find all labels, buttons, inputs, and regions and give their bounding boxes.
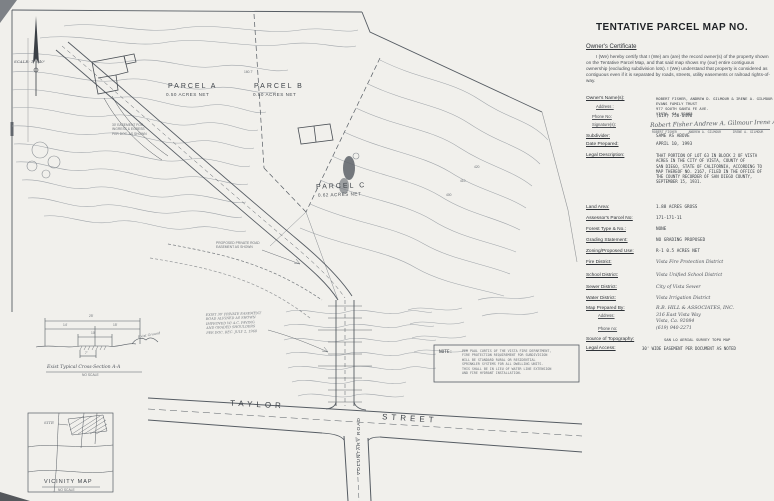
water-district-label: Water District: xyxy=(586,296,616,301)
parcel-a-label: PARCEL A xyxy=(168,82,217,91)
leader-arrows xyxy=(58,250,328,425)
owners-certificate-body: I (We) hereby certify that I (We) am (ar… xyxy=(586,54,770,84)
owner-address-label: Address : xyxy=(596,104,614,109)
subdivider-label: Subdivider: xyxy=(586,134,610,139)
vicinity-map-scale: NO SCALE xyxy=(58,488,75,492)
signature-label: Signature(s): xyxy=(592,122,616,127)
cross-section-drawing xyxy=(36,318,158,372)
house-parcel-b xyxy=(298,124,333,144)
elevation-400: 400 xyxy=(446,193,452,197)
sheet-title: TENTATIVE PARCEL MAP NO. xyxy=(596,22,772,33)
cs-dim-10: 10' xyxy=(91,331,95,335)
school-district-label: School District: xyxy=(586,273,618,278)
cs-dim-7: 7' xyxy=(85,351,87,355)
preparer-address-value: 316 East Vista Way Vista, Ca. 92084 xyxy=(656,313,701,325)
owners-certificate-heading: Owner's Certificate xyxy=(586,44,637,50)
date-prepared-row: Date Prepared: APRIL 10, 1993 xyxy=(584,142,774,152)
sewer-district-value: City of Vista Sewer xyxy=(656,285,701,291)
house-parcel-a xyxy=(92,54,168,160)
owner-address-row: Address : xyxy=(584,104,774,114)
grading-row: Grading Statement: NO GRADING PROPOSED xyxy=(584,238,774,248)
apn-value: 171-171-11 xyxy=(656,216,682,222)
ingress-easement-note: 30' EASEMENT FOR INGRESS & EGRESS PER DO… xyxy=(112,123,147,136)
legal-description-value: THAT PORTION OF LOT 63 IN BLOCK 2 OF VIS… xyxy=(656,153,762,185)
scan-artifacts xyxy=(0,0,30,501)
preparer-address-label: Address: xyxy=(598,313,615,318)
map-prepared-by-label: Map Prepared By: xyxy=(586,306,625,311)
fire-district-row: Fire District: Vista Fire Protection Dis… xyxy=(584,260,774,270)
dimension-label: 160.7' xyxy=(244,70,253,74)
elevation-410: 410 xyxy=(460,179,466,183)
zoning-value: R-1 0.5 ACRES NET xyxy=(656,249,700,255)
owner-phone-value: (619) 758-0490 xyxy=(656,114,692,120)
cs-dim-15: 15' xyxy=(113,323,117,327)
date-prepared-label: Date Prepared: xyxy=(586,142,619,147)
easement-callout: PROPOSED PRIVATE ROAD EASEMENT AS SHOWN xyxy=(216,241,260,250)
owner-phone-label: Phone No: xyxy=(592,114,612,119)
topography-value: SAN LO AERIAL SURVEY TOPO MAP xyxy=(664,337,730,342)
owner-name-label: Owner's Name(s): xyxy=(586,96,625,101)
parcel-b-area: 0.50 ACRES NET xyxy=(253,92,296,98)
cs-dim-25: 25' xyxy=(89,314,93,318)
parcel-map-sheet: SCALE: 1"=40' PARCEL A 0.50 ACRES NET PA… xyxy=(0,0,774,501)
legal-description-row: Legal Description: THAT PORTION OF LOT 6… xyxy=(584,153,774,163)
forest-row: Forest Type & No.: NONE xyxy=(584,227,774,237)
school-district-value: Vista Unified School District xyxy=(656,273,722,279)
land-area-label: Land Area: xyxy=(586,205,609,210)
water-district-value: Vista Irrigation District xyxy=(656,296,710,302)
title-block: TENTATIVE PARCEL MAP NO. Owner's Certifi… xyxy=(584,0,774,501)
sewer-district-label: Sewer District: xyxy=(586,285,617,290)
private-road xyxy=(56,42,352,300)
apn-label: Assessor's Parcel No: xyxy=(586,216,633,221)
cross-section-title: Exist Typical Cross-Section A-A xyxy=(47,365,120,371)
forest-label: Forest Type & No.: xyxy=(586,227,626,232)
fire-district-value: Vista Fire Protection District xyxy=(656,260,723,266)
preparer-address-row: Address: 316 East Vista Way Vista, Ca. 9… xyxy=(584,313,774,323)
vicinity-site-label: SITE xyxy=(44,420,54,425)
zoning-label: Zoning/Proposed Use: xyxy=(586,249,634,254)
water-district-row: Water District: Vista Irrigation Distric… xyxy=(584,296,774,306)
note-label: NOTE: xyxy=(439,350,452,356)
tree-symbols xyxy=(27,142,359,178)
sewer-district-row: Sewer District: City of Vista Sewer xyxy=(584,285,774,295)
cs-dim-14: 14' xyxy=(63,323,67,327)
private-road-note: EXIST 30' PRIVATE EASEMENT ROAD ALIGNED … xyxy=(206,311,262,335)
voluntary-road-label: VOLUNTARY ROAD xyxy=(357,394,363,498)
school-district-row: School District: Vista Unified School Di… xyxy=(584,273,774,283)
fire-district-label: Fire District: xyxy=(586,260,612,265)
date-prepared-value: APRIL 10, 1993 xyxy=(656,142,692,148)
contour-lines xyxy=(12,25,548,397)
apn-row: Assessor's Parcel No: 171-171-11 xyxy=(584,216,774,226)
map-prepared-by-value: R.B. HILL & ASSOCIATES, INC. xyxy=(656,306,734,312)
vicinity-map-title: VICINITY MAP xyxy=(44,479,93,486)
legal-access-row: Legal Access: 30' WIDE EASEMENT PER DOCU… xyxy=(584,346,774,356)
zoning-row: Zoning/Proposed Use: R-1 0.5 ACRES NET xyxy=(584,249,774,259)
preparer-phone-value: (619) 940-2271 xyxy=(656,326,692,332)
parcel-a-area: 0.50 ACRES NET xyxy=(166,92,209,98)
elevation-420: 420 xyxy=(474,165,480,169)
property-boundary xyxy=(12,10,577,312)
forest-value: NONE xyxy=(656,227,666,233)
cross-section-scale: NO SCALE xyxy=(82,373,99,377)
subdivider-value: SAME AS ABOVE xyxy=(656,134,690,140)
land-area-row: Land Area: 1.88 ACRES GROSS xyxy=(584,205,774,215)
legal-access-value: 30' WIDE EASEMENT PER DOCUMENT AS NOTED xyxy=(642,346,736,351)
legal-description-label: Legal Description: xyxy=(586,153,624,158)
land-area-value: 1.88 ACRES GROSS xyxy=(656,205,697,211)
taylor-street xyxy=(148,398,582,452)
north-arrow-icon xyxy=(33,16,39,96)
grading-value: NO GRADING PROPOSED xyxy=(656,238,705,244)
parcel-b-label: PARCEL B xyxy=(254,82,304,91)
preparer-phone-label: Phone no: xyxy=(598,326,617,331)
preparer-phone-row: Phone no: (619) 940-2271 xyxy=(584,326,774,336)
topography-label: Source of Topography: xyxy=(586,337,634,342)
grading-label: Grading Statement: xyxy=(586,238,628,243)
scale-label: SCALE: 1"=40' xyxy=(14,59,45,64)
note-text: PER PAUL CURTIS OF THE VISTA FIRE DEPART… xyxy=(462,349,551,376)
legal-access-label: Legal Access: xyxy=(586,346,616,351)
stationed-road xyxy=(318,300,372,410)
